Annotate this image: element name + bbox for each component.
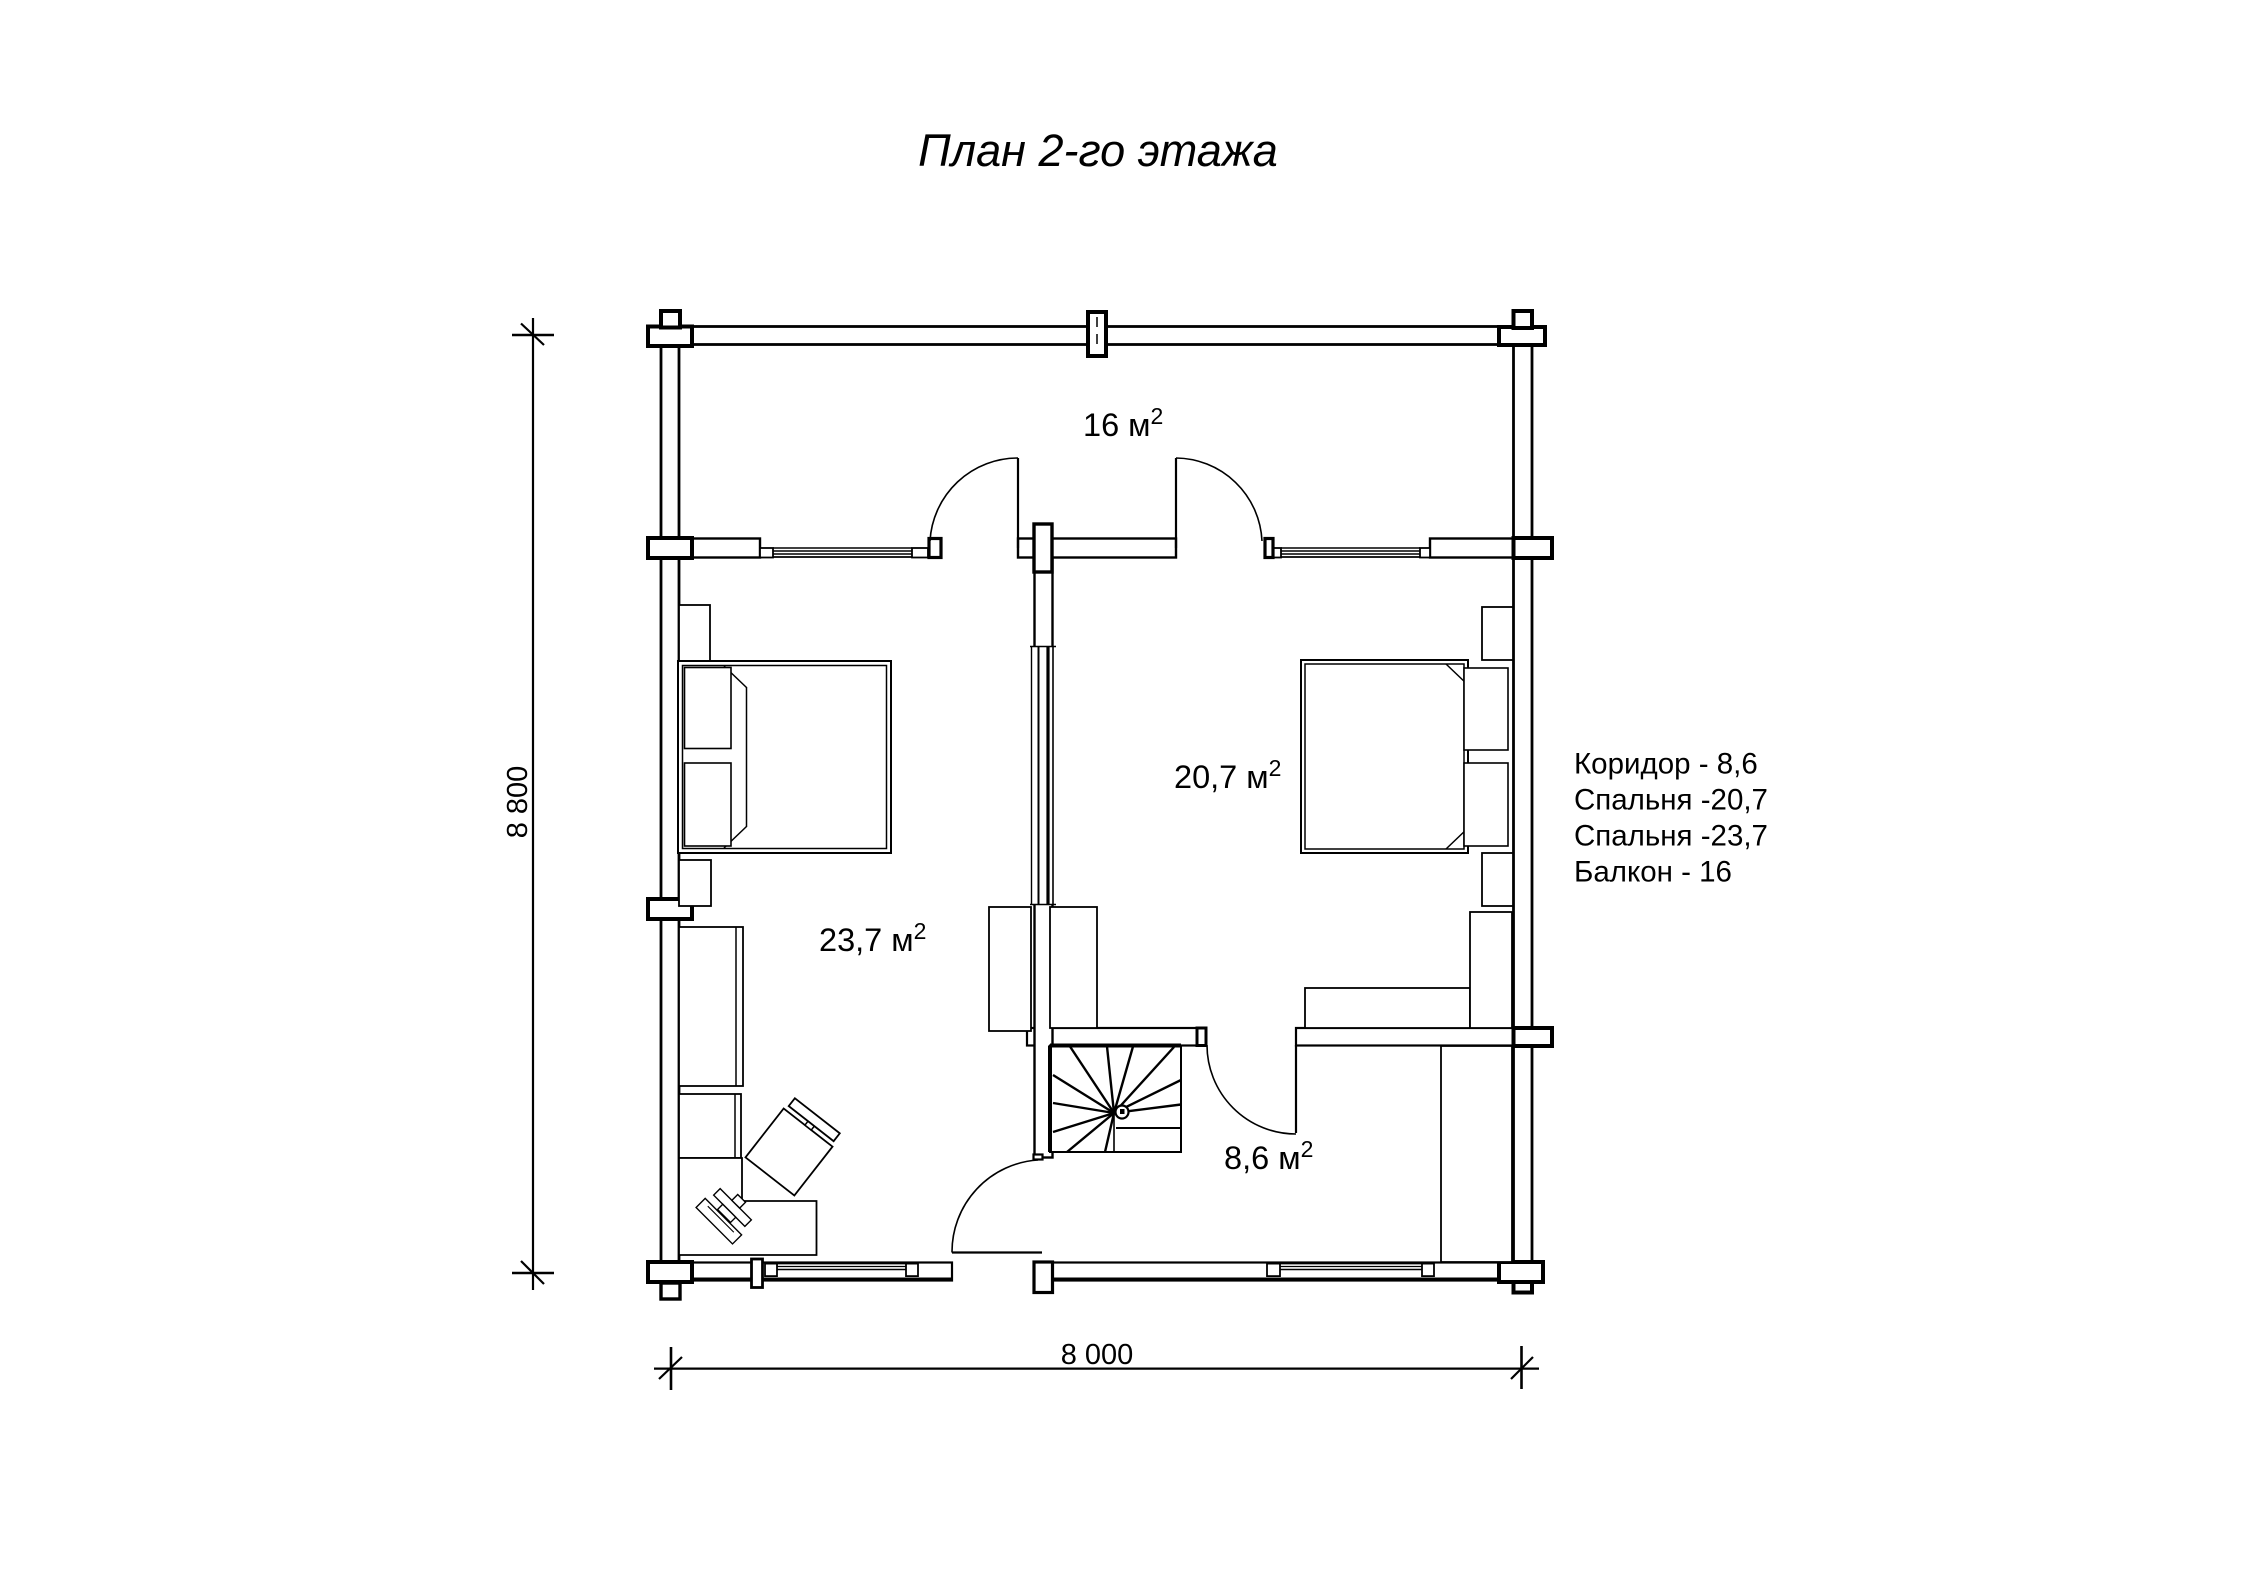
svg-text:20,7 м2: 20,7 м2 <box>1174 755 1281 795</box>
svg-text:8 000: 8 000 <box>1061 1339 1134 1371</box>
svg-text:План 2-го этажа: План 2-го этажа <box>918 125 1278 176</box>
svg-text:Коридор - 8,6: Коридор - 8,6 <box>1574 748 1758 781</box>
svg-text:Спальня -23,7: Спальня -23,7 <box>1574 820 1768 853</box>
svg-text:Спальня -20,7: Спальня -20,7 <box>1574 784 1768 817</box>
svg-text:23,7 м2: 23,7 м2 <box>819 918 926 958</box>
svg-text:8 800: 8 800 <box>502 766 534 839</box>
svg-text:Балкон - 16: Балкон - 16 <box>1574 856 1732 889</box>
svg-text:8,6 м2: 8,6 м2 <box>1224 1136 1313 1176</box>
